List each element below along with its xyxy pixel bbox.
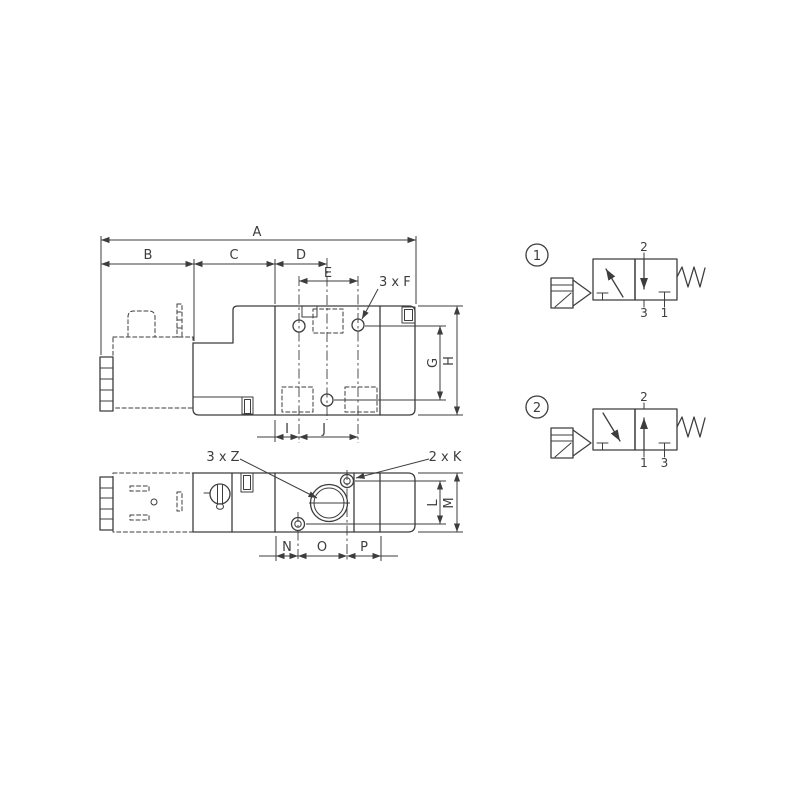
pilot-triangle-icon xyxy=(573,430,591,456)
end-port-inner xyxy=(405,310,413,321)
hole-callout-f: 3 x F xyxy=(362,275,411,319)
spring-return-icon xyxy=(677,267,705,287)
port-1-label: 1 xyxy=(661,306,669,320)
dim-n-label: N xyxy=(282,540,292,555)
port-2-label: 2 xyxy=(640,240,648,254)
side-port-inner xyxy=(245,400,251,414)
valve-position-box xyxy=(635,259,677,300)
solenoid-tab-hidden xyxy=(128,311,155,337)
top-view: A B C D E 3 x F I J xyxy=(100,225,463,443)
dimension-ij: I J xyxy=(257,420,358,442)
dim-a-label: A xyxy=(253,225,262,240)
port-3-label: 3 xyxy=(661,456,669,470)
valve-symbol-2: 2 2 1 3 xyxy=(526,390,705,470)
valve-symbol-1: 1 2 3 1 xyxy=(526,240,705,320)
solenoid-pilot-actuator xyxy=(551,278,591,308)
port-3-label: 3 xyxy=(640,306,648,320)
dim-o-label: O xyxy=(317,540,327,555)
top-port-inner xyxy=(244,476,251,490)
pilot-triangle-icon xyxy=(573,280,591,306)
valve-position-box xyxy=(593,259,635,300)
dim-b-label: B xyxy=(144,248,153,263)
coil-terminal-hidden xyxy=(130,486,149,491)
valve-position-box xyxy=(593,409,635,450)
flow-arrow-diagonal xyxy=(606,269,623,297)
solenoid-pilot-actuator xyxy=(551,428,591,458)
dim-e-label: E xyxy=(324,266,332,281)
bottom-view: 3 x Z 2 x K N O P xyxy=(100,450,463,561)
dim-c-label: C xyxy=(229,248,238,263)
hole-count-label-f: 3 x F xyxy=(379,275,411,290)
hole-callout-k: 2 x K xyxy=(356,450,462,478)
port-count-label-z: 3 x Z xyxy=(206,450,239,465)
dimension-nop: N O P xyxy=(259,536,398,561)
port-2-label: 2 xyxy=(640,390,648,404)
valve-position-box xyxy=(635,409,677,450)
symbol-1-number: 1 xyxy=(533,249,541,264)
coil-terminal-hidden xyxy=(130,515,149,520)
dim-g-label: G xyxy=(426,358,441,368)
spring-return-icon xyxy=(677,417,705,437)
manual-override-screw xyxy=(204,484,230,509)
dim-m-label: M xyxy=(442,497,457,508)
main-port-circle xyxy=(309,485,350,522)
dim-l-label: L xyxy=(426,499,441,507)
valve-dimensional-drawing: A B C D E 3 x F I J xyxy=(0,0,800,800)
symbol-2-number: 2 xyxy=(533,401,541,416)
dim-i-label: I xyxy=(285,422,289,437)
dim-p-label: P xyxy=(360,540,368,555)
dim-h-label: H xyxy=(442,356,457,366)
dim-d-label: D xyxy=(296,248,306,263)
corner-notch xyxy=(302,306,317,317)
port-1-label: 1 xyxy=(640,456,648,470)
hole-count-label-k: 2 x K xyxy=(429,450,462,465)
solenoid-coil-hidden xyxy=(113,337,193,408)
port-callout-z: 3 x Z xyxy=(206,450,317,498)
dimension-e: E xyxy=(299,266,358,281)
dimension-a: A xyxy=(101,225,416,355)
connector-pin-hidden xyxy=(177,492,182,511)
flow-arrow-diagonal xyxy=(603,413,620,441)
cable-connector xyxy=(100,357,113,411)
coil-detail-hole xyxy=(151,499,157,505)
solenoid-coil-hidden xyxy=(113,473,193,532)
port-cavity-hidden xyxy=(282,387,313,412)
cable-connector xyxy=(100,477,113,530)
dim-j-label: J xyxy=(321,422,326,437)
